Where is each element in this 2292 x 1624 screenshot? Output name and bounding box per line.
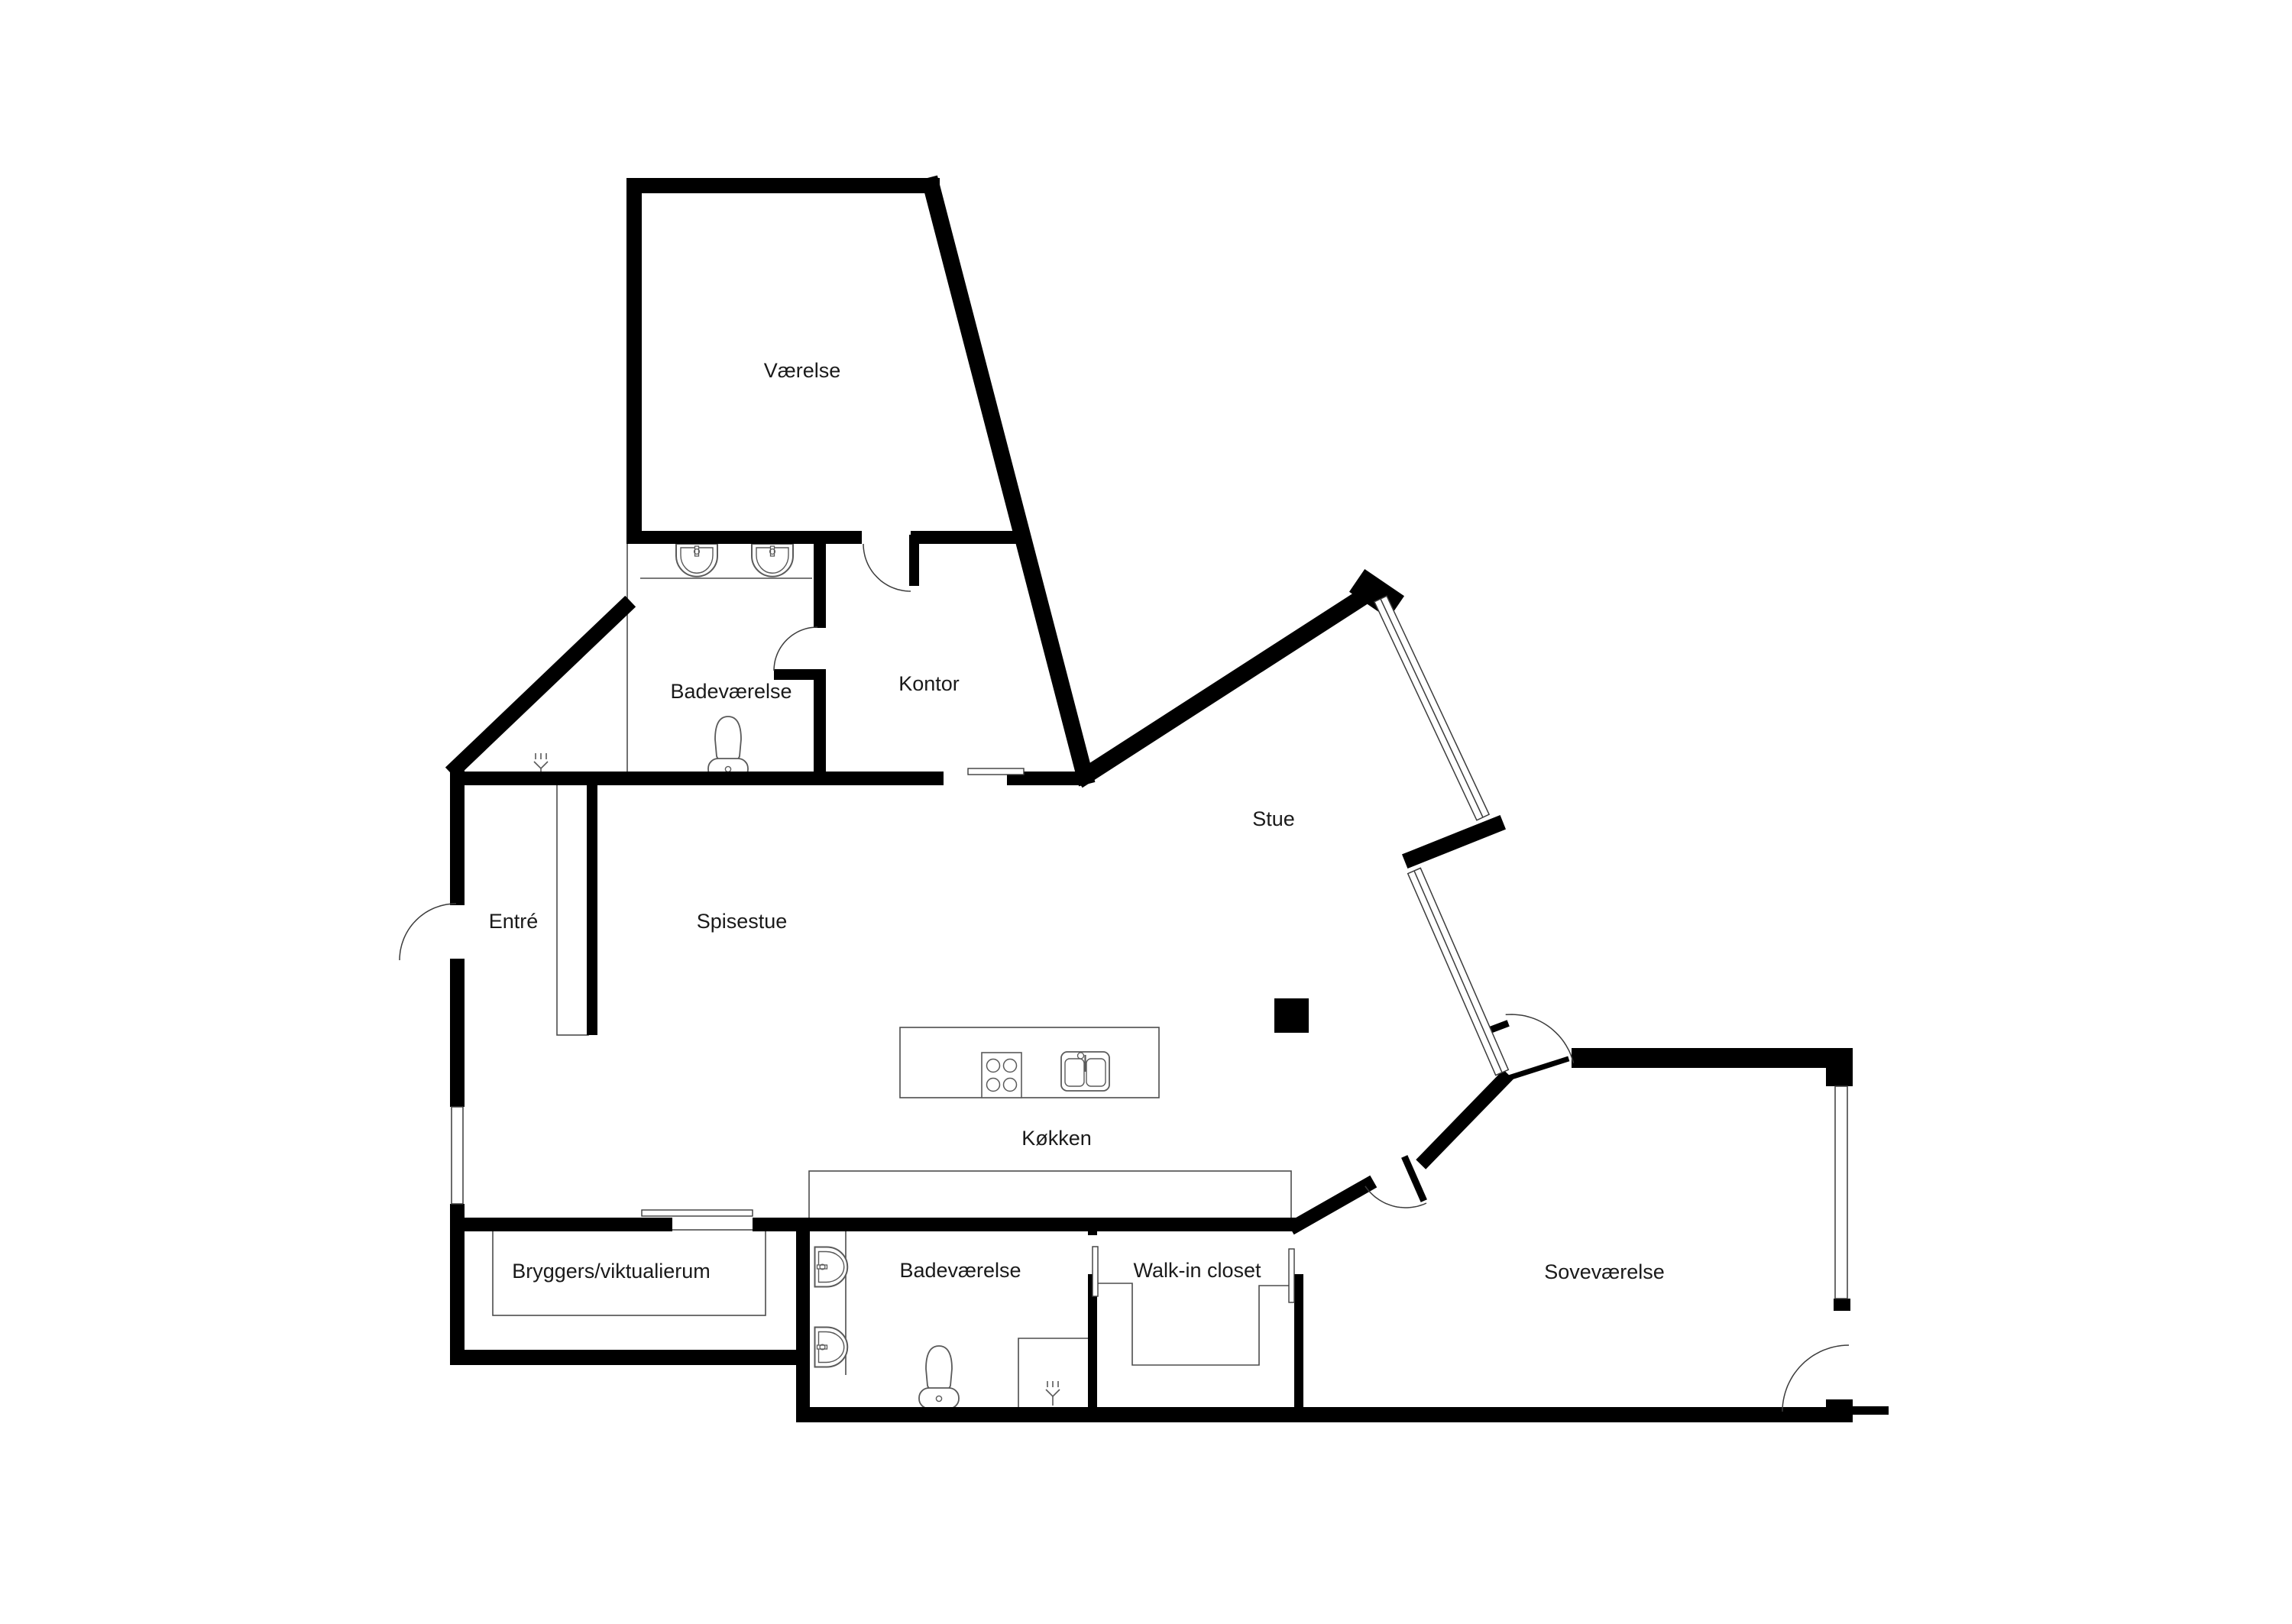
- vaerelse-west-wall: [626, 178, 642, 544]
- door-leaf: [909, 535, 919, 586]
- toilet-bowl: [715, 717, 741, 762]
- sink-icon: [815, 1328, 848, 1367]
- window-frame: [1835, 1086, 1847, 1299]
- sink-faucet: [817, 1265, 827, 1269]
- floor-plan-page: VærelseBadeværelseKontorStueEntréSpisest…: [0, 0, 2292, 1620]
- door-leaf: [1847, 1406, 1889, 1415]
- closet-sliding-door: [1289, 1249, 1294, 1302]
- sovevaerelse-ne-corner: [1826, 1048, 1853, 1086]
- dsink-icon: [1061, 1052, 1109, 1091]
- sink-faucet: [771, 546, 775, 556]
- sink-icon: [815, 1247, 848, 1287]
- toilet-tank: [919, 1388, 959, 1409]
- kitchen-south-wall-b: [753, 1218, 1297, 1231]
- entre-partition-edge: [587, 783, 597, 1035]
- room-label-spisestue: Spisestue: [697, 910, 788, 933]
- vaerelse-south-wall-b: [911, 531, 1019, 544]
- bryggers-sliding-door: [642, 1210, 753, 1216]
- toilet-bowl: [926, 1346, 952, 1392]
- bath-wall-stub: [774, 669, 826, 680]
- kontor-threshold: [968, 768, 1024, 775]
- sovevaerelse-north-wall: [1572, 1048, 1847, 1068]
- east-wall-jamb: [1834, 1299, 1850, 1311]
- south-wall-left-section: [450, 1350, 798, 1365]
- bath-kontor-wall-upper: [814, 535, 826, 628]
- vaerelse-south-wall-a: [628, 531, 862, 544]
- room-label-vaerelse: Værelse: [764, 359, 841, 382]
- room-label-walkin: Walk-in closet: [1133, 1259, 1261, 1282]
- vaerelse-north-wall: [626, 178, 940, 193]
- room-label-entre: Entré: [489, 910, 539, 933]
- floor-plan-svg: VærelseBadeværelseKontorStueEntréSpisest…: [0, 0, 2292, 1620]
- sink-faucet: [695, 546, 699, 556]
- kitchen-south-wall-a: [457, 1218, 672, 1231]
- sink-icon: [752, 544, 793, 577]
- bath2-closet-wall-stub: [1088, 1226, 1097, 1235]
- south-wall-main: [796, 1407, 1853, 1422]
- spisestue-north-wall-a: [457, 772, 944, 785]
- window-frame: [452, 1107, 463, 1204]
- room-label-stue: Stue: [1252, 807, 1295, 830]
- stove-body: [982, 1053, 1021, 1098]
- room-label-badevaerelse-bottom: Badeværelse: [899, 1259, 1021, 1282]
- bath2-west-step-wall: [796, 1224, 810, 1422]
- sink-icon: [676, 544, 717, 577]
- room-label-koekken: Køkken: [1021, 1127, 1092, 1150]
- room-label-sovevaerelse: Soveværelse: [1544, 1260, 1665, 1283]
- west-wall-seg2: [450, 959, 465, 1107]
- sovevaerelse-window: [1835, 1086, 1847, 1299]
- room-label-bryggers: Bryggers/viktualierum: [512, 1260, 711, 1283]
- pillar: [1274, 998, 1309, 1033]
- room-label-kontor: Kontor: [898, 672, 960, 695]
- bath2-sliding-door: [1093, 1247, 1098, 1296]
- closet-bedroom-wall: [1294, 1274, 1303, 1409]
- stove-icon: [982, 1053, 1021, 1098]
- room-label-badevaerelse-top: Badeværelse: [670, 680, 792, 703]
- bath-kontor-wall-lower: [814, 680, 826, 774]
- entre-window: [452, 1107, 463, 1204]
- sink-faucet: [817, 1345, 827, 1349]
- plan-background: [0, 0, 2292, 1620]
- west-wall-seg1: [450, 765, 465, 905]
